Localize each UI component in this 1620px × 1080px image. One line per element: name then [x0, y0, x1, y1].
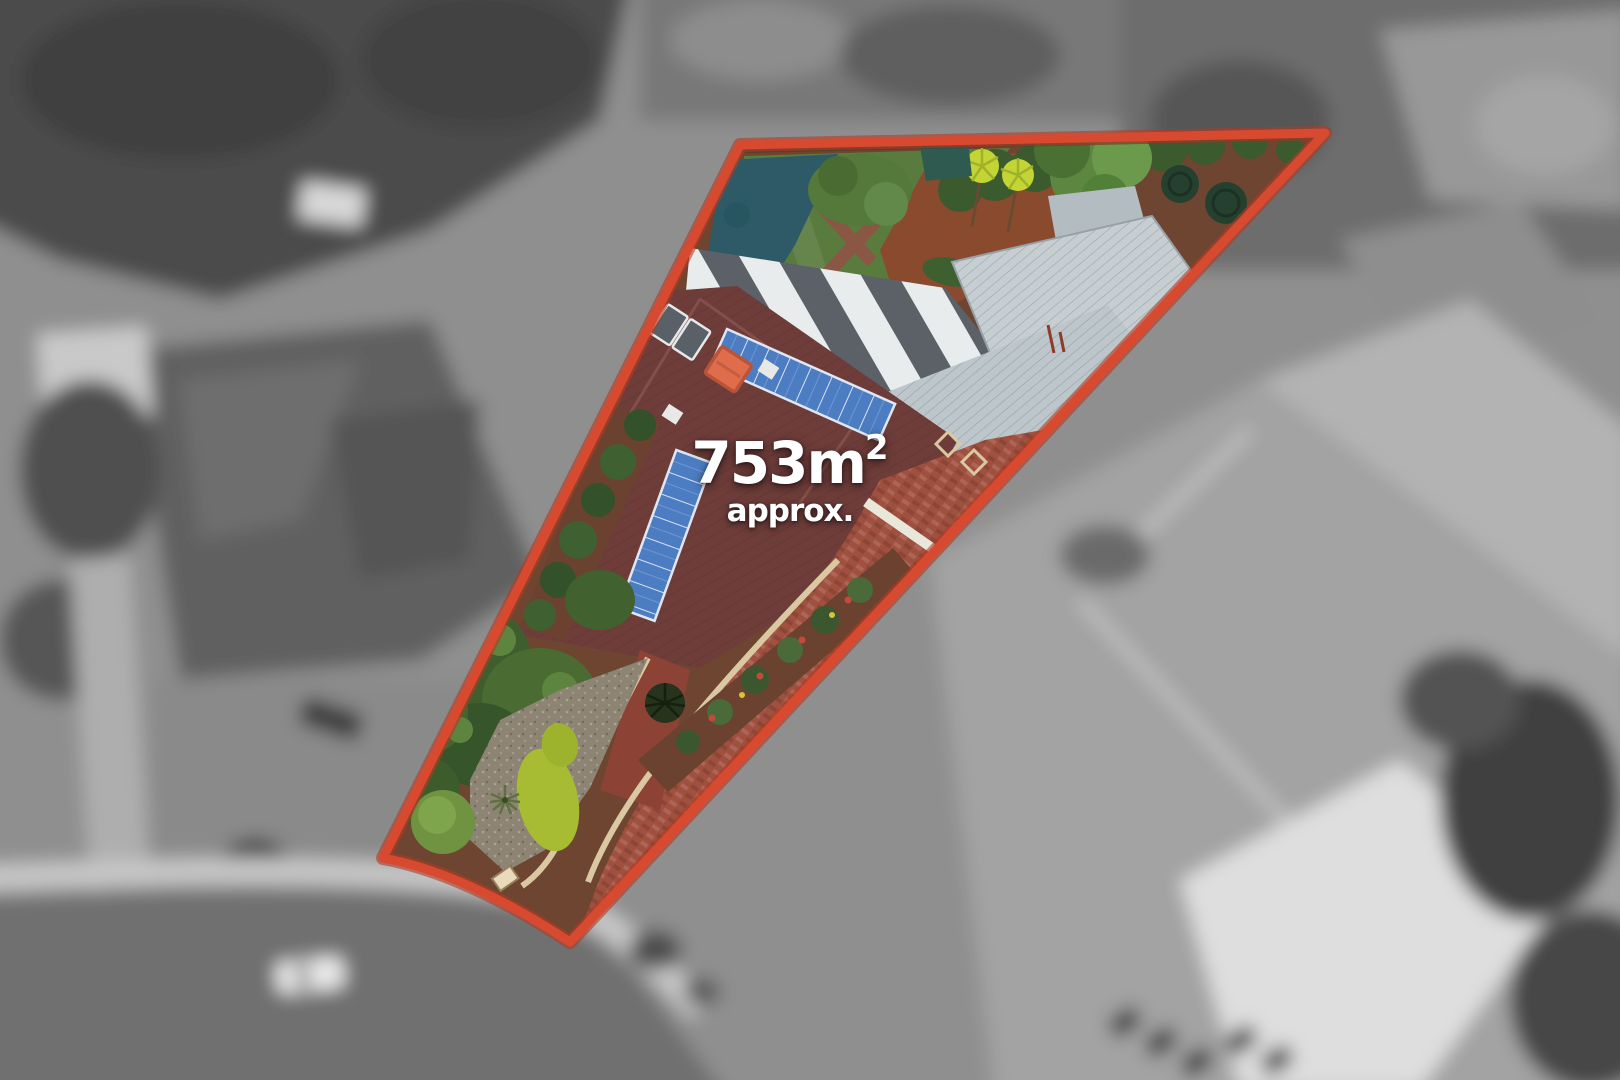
neighbor-roof — [840, 5, 1060, 105]
round-bush-highlight — [418, 796, 456, 834]
street-object — [684, 978, 720, 1006]
patio-umbrella — [724, 202, 750, 228]
fern-tree — [645, 683, 685, 723]
roof-shadow — [1060, 525, 1150, 585]
tree-mass — [20, 0, 340, 160]
neighbor-roof — [1475, 75, 1615, 175]
trees-right — [1400, 650, 1520, 750]
aerial-scene — [0, 0, 1620, 1080]
aerial-property-photo: 753m2 approx. — [0, 0, 1620, 1080]
tree-mass — [20, 380, 160, 560]
overhanging-tree — [808, 154, 912, 226]
street-object — [629, 930, 681, 970]
neighbor-roof — [670, 0, 850, 80]
